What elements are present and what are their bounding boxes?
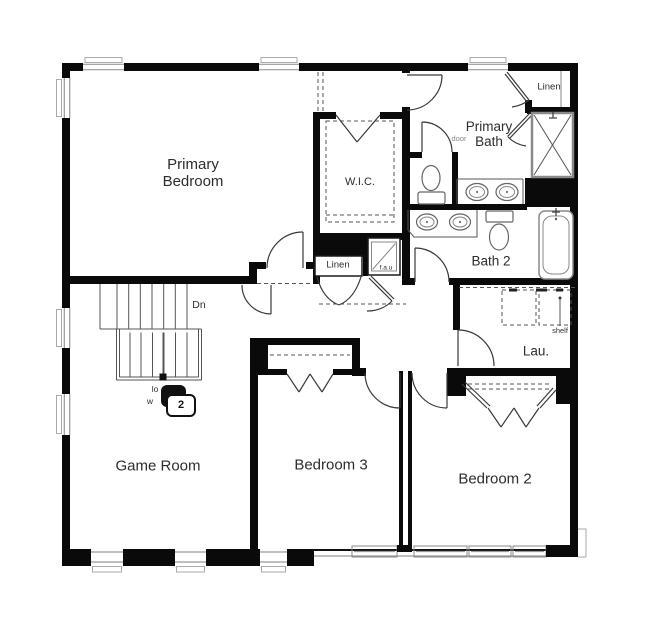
window-bottom-1 <box>91 549 123 572</box>
primary-bedroom-label: Primary Bedroom <box>163 157 224 191</box>
bath2-vanity-sinks <box>408 210 477 237</box>
linen-top-door <box>505 72 529 107</box>
low-wall-label-2: w <box>147 397 153 407</box>
laundry-label: Lau. <box>523 343 549 358</box>
washer <box>502 290 536 325</box>
floor-plan-drawing <box>0 0 650 628</box>
linen-top-label: Linen <box>537 83 560 94</box>
shelf-label: shelf <box>552 327 568 335</box>
window-left-2 <box>57 308 71 348</box>
shower <box>532 112 573 177</box>
shelf-leader <box>559 297 562 327</box>
window-top-2 <box>259 58 299 72</box>
low-wall-label-1: lo <box>152 385 159 395</box>
window-bottom-3 <box>260 549 287 572</box>
fau-label: f.a.u <box>380 264 393 271</box>
bedroom3-label: Bedroom 3 <box>294 458 367 475</box>
primary-bath-door <box>407 75 442 110</box>
fau-door <box>367 276 394 311</box>
dryer <box>539 290 571 325</box>
bedroom2-door <box>412 373 447 408</box>
staircase <box>100 284 202 381</box>
window-bottom-2 <box>175 549 206 572</box>
window-left-3 <box>57 394 71 435</box>
exterior-corner-line <box>578 529 586 557</box>
linen-hall-double-doors <box>317 277 361 305</box>
wic-label: W.I.C. <box>345 176 375 188</box>
bedroom2-label: Bedroom 2 <box>458 472 531 489</box>
keynote-badge: 2 <box>166 394 196 417</box>
bath2-toilet <box>486 211 513 250</box>
laundry-door <box>458 330 494 366</box>
primary-bedroom-door <box>267 232 303 268</box>
window-top-3 <box>468 58 508 72</box>
laundry-appliances <box>502 290 571 326</box>
window-band-bottom-right <box>314 545 570 557</box>
water-closet-door <box>422 122 452 152</box>
door-annotation: door <box>451 135 466 143</box>
game-room-label: Game Room <box>115 459 200 476</box>
bathtub <box>539 208 573 279</box>
window-top-1 <box>83 58 124 72</box>
stair-newel-post <box>160 374 167 381</box>
linen-hall-label: Linen <box>326 261 349 272</box>
primary-bath-label: Primary Bath <box>466 119 513 149</box>
primary-vanity-sinks <box>457 179 523 204</box>
floor-plan: Primary Bedroom W.I.C. Primary Bath door… <box>0 0 650 628</box>
bath2-label: Bath 2 <box>471 253 510 268</box>
hall-door <box>242 285 271 314</box>
stairs-down-label: Dn <box>192 300 205 312</box>
wic-bifold-doors <box>336 115 380 142</box>
bedroom3-closet-bifold <box>287 374 333 392</box>
bedroom3-door <box>365 373 400 408</box>
window-left-1 <box>57 78 71 118</box>
water-closet-toilet <box>418 166 445 205</box>
bath2-door <box>415 248 449 282</box>
